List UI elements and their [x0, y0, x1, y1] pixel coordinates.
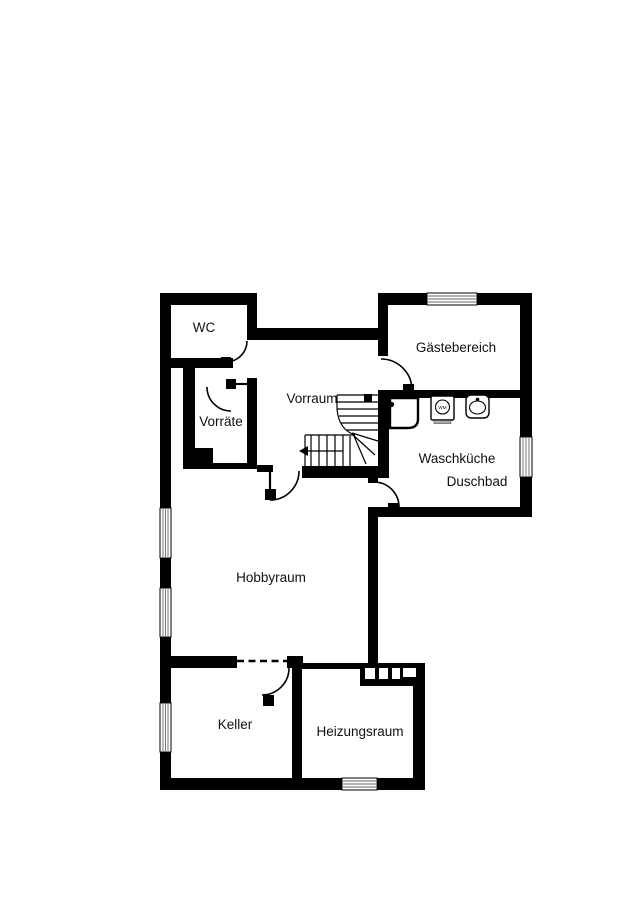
door-stop-waschkueche: [388, 503, 399, 513]
room-label-vorraum: Vorraum: [286, 391, 337, 406]
door-stop-wc: [221, 357, 231, 367]
door-stop-gaestebereich: [403, 384, 414, 394]
door-hinge-vorraete: [226, 379, 236, 389]
door-arc-vorraete: [207, 387, 231, 411]
door-stop-heizungsraum: [263, 695, 274, 706]
sink-icon: [466, 395, 489, 418]
room-label-heizungsraum: Heizungsraum: [316, 724, 403, 739]
window-glazing-lines: [163, 296, 529, 787]
floor-plan: WM WC Vorräte Vorraum Gästebereich Wasch…: [0, 0, 636, 900]
room-label-gaestebereich: Gästebereich: [416, 340, 496, 355]
walls-layer: [160, 293, 532, 790]
room-label-vorraete: Vorräte: [199, 414, 243, 429]
stair-arrow-icon: [299, 446, 308, 456]
room-label-wc: WC: [193, 320, 216, 335]
door-stop-hobbyraum: [265, 489, 276, 500]
room-label-duschbad: Duschbad: [447, 474, 508, 489]
washing-machine-icon: WM: [431, 396, 454, 424]
door-arc-heizungsraum: [262, 668, 289, 695]
room-label-hobbyraum: Hobbyraum: [236, 570, 306, 585]
washing-machine-label: WM: [438, 405, 446, 410]
shower-enclosure: [390, 398, 418, 428]
room-label-waschkueche: Waschküche: [419, 451, 496, 466]
room-label-keller: Keller: [218, 717, 253, 732]
room-labels: WC Vorräte Vorraum Gästebereich Waschküc…: [193, 320, 508, 739]
floor-plan-canvas: WM WC Vorräte Vorraum Gästebereich Wasch…: [0, 0, 636, 900]
